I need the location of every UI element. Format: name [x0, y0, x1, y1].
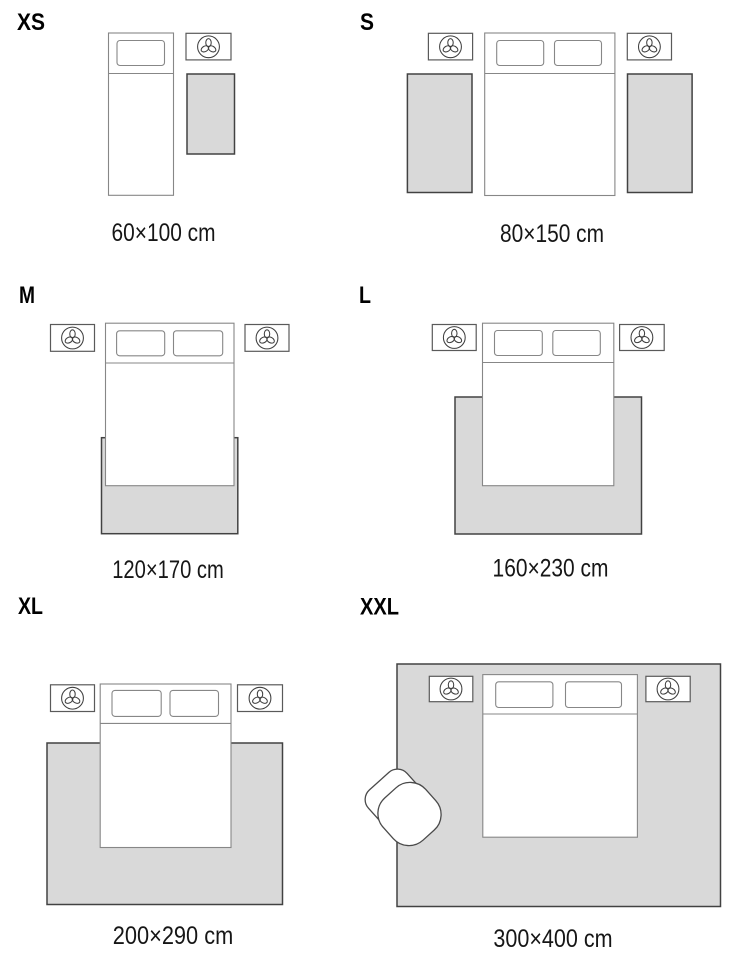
svg-text:300×400 cm: 300×400 cm: [493, 925, 612, 953]
svg-text:200×290 cm: 200×290 cm: [113, 922, 234, 950]
svg-text:XS: XS: [17, 9, 45, 36]
svg-text:60×100 cm: 60×100 cm: [112, 219, 216, 247]
svg-text:120×170 cm: 120×170 cm: [112, 556, 224, 584]
svg-text:M: M: [19, 282, 35, 309]
svg-text:80×150 cm: 80×150 cm: [500, 220, 604, 248]
svg-text:S: S: [360, 9, 374, 36]
svg-text:L: L: [359, 282, 371, 309]
svg-text:160×230 cm: 160×230 cm: [493, 555, 609, 583]
svg-text:XXL: XXL: [360, 594, 399, 621]
svg-text:XL: XL: [18, 593, 43, 620]
